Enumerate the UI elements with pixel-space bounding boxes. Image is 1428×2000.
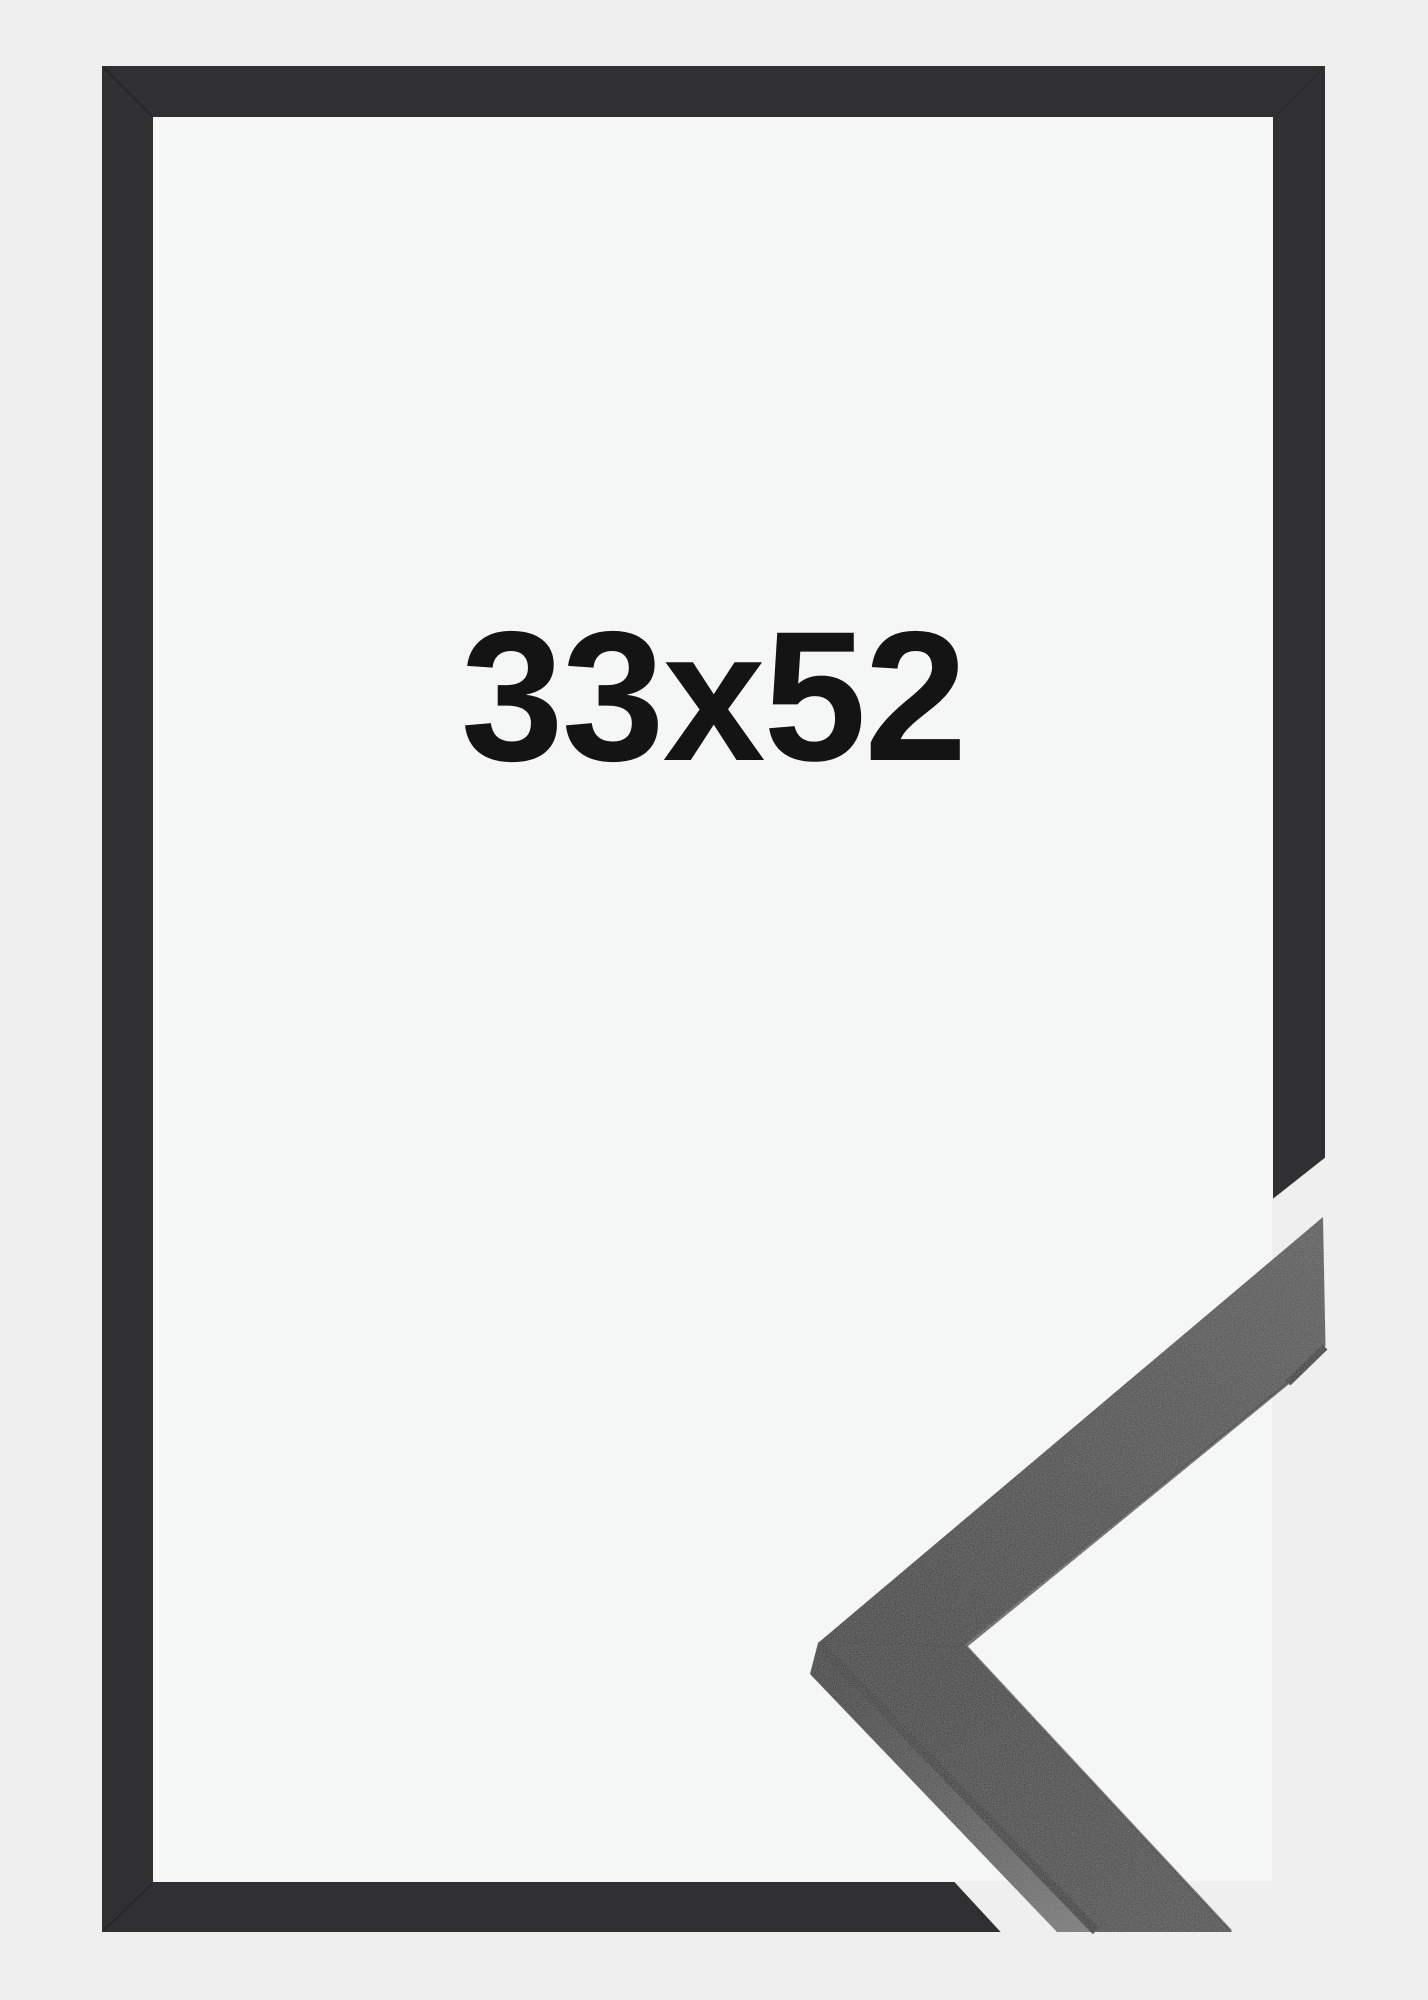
product-image: 33x52 xyxy=(0,0,1428,2000)
frame-graphic xyxy=(0,0,1428,2000)
frame-opening xyxy=(153,117,1273,1882)
size-label: 33x52 xyxy=(153,605,1273,790)
